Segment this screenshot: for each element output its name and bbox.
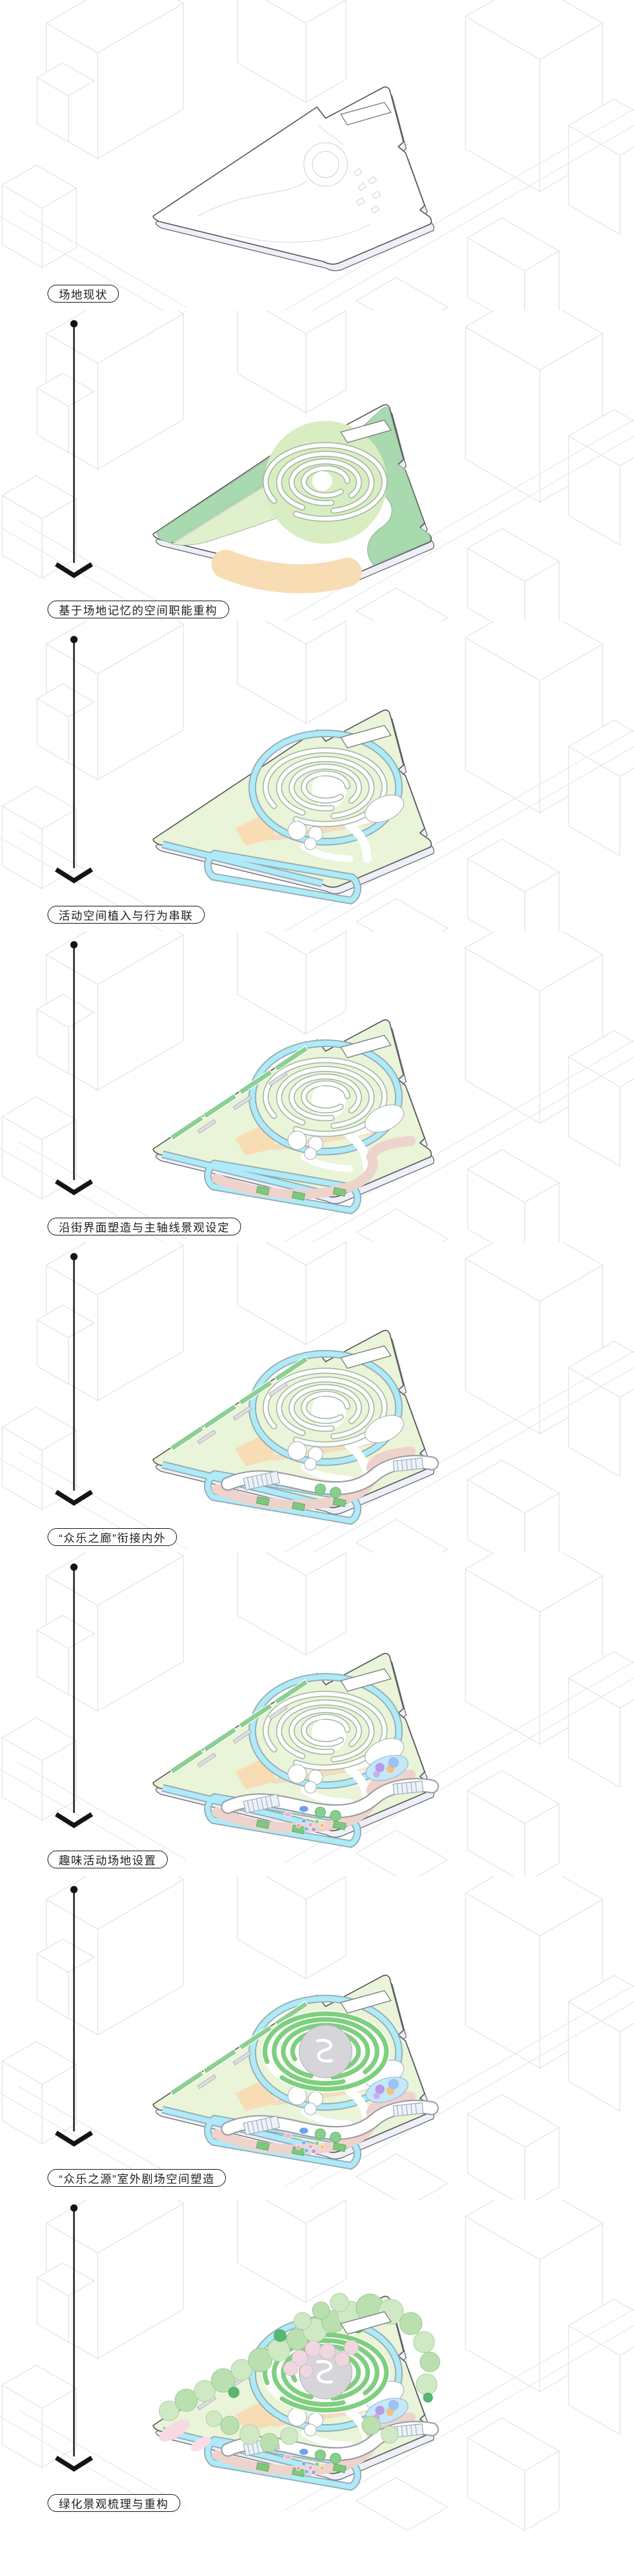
stage-7-axonometric-diagram [0,1876,634,2200]
stage-2-label: 基于场地记忆的空间职能重构 [48,601,229,618]
stage-6-label: 趣味活动场地设置 [48,1851,168,1868]
stage-6-axonometric-diagram [0,1553,634,1876]
site-plan [153,710,434,901]
stage-8-label: 绿化景观梳理与重构 [48,2494,180,2512]
site-plan [153,2293,440,2487]
stage-3-label: 活动空间植入与行为串联 [48,906,205,924]
design-process-diagram: 场地现状 基于场地记忆的空间职能重构 活动空间植入与行为串联 沿街界面塑造与主轴… [0,0,634,2576]
stage-5-label: “众乐之廊”衔接内外 [48,1528,177,1546]
site-plan [153,1331,434,1521]
stage-1-label: 场地现状 [48,285,119,303]
stage-3-axonometric-diagram [0,621,634,932]
stage-8-axonometric-diagram [0,2200,634,2576]
site-plan [153,87,434,271]
stage-2-axonometric-diagram [0,311,634,621]
stage-4-axonometric-diagram [0,932,634,1242]
site-plan [153,405,434,589]
site-plan [153,1975,434,2166]
site-plan [153,1020,434,1210]
stage-5-axonometric-diagram [0,1242,634,1553]
stage-1-axonometric-diagram [0,0,634,311]
stage-7-label: “众乐之源”室外剧场空间塑造 [48,2169,226,2187]
stage-4-label: 沿街界面塑造与主轴线景观设定 [48,1218,241,1235]
site-plan [153,1654,434,1844]
